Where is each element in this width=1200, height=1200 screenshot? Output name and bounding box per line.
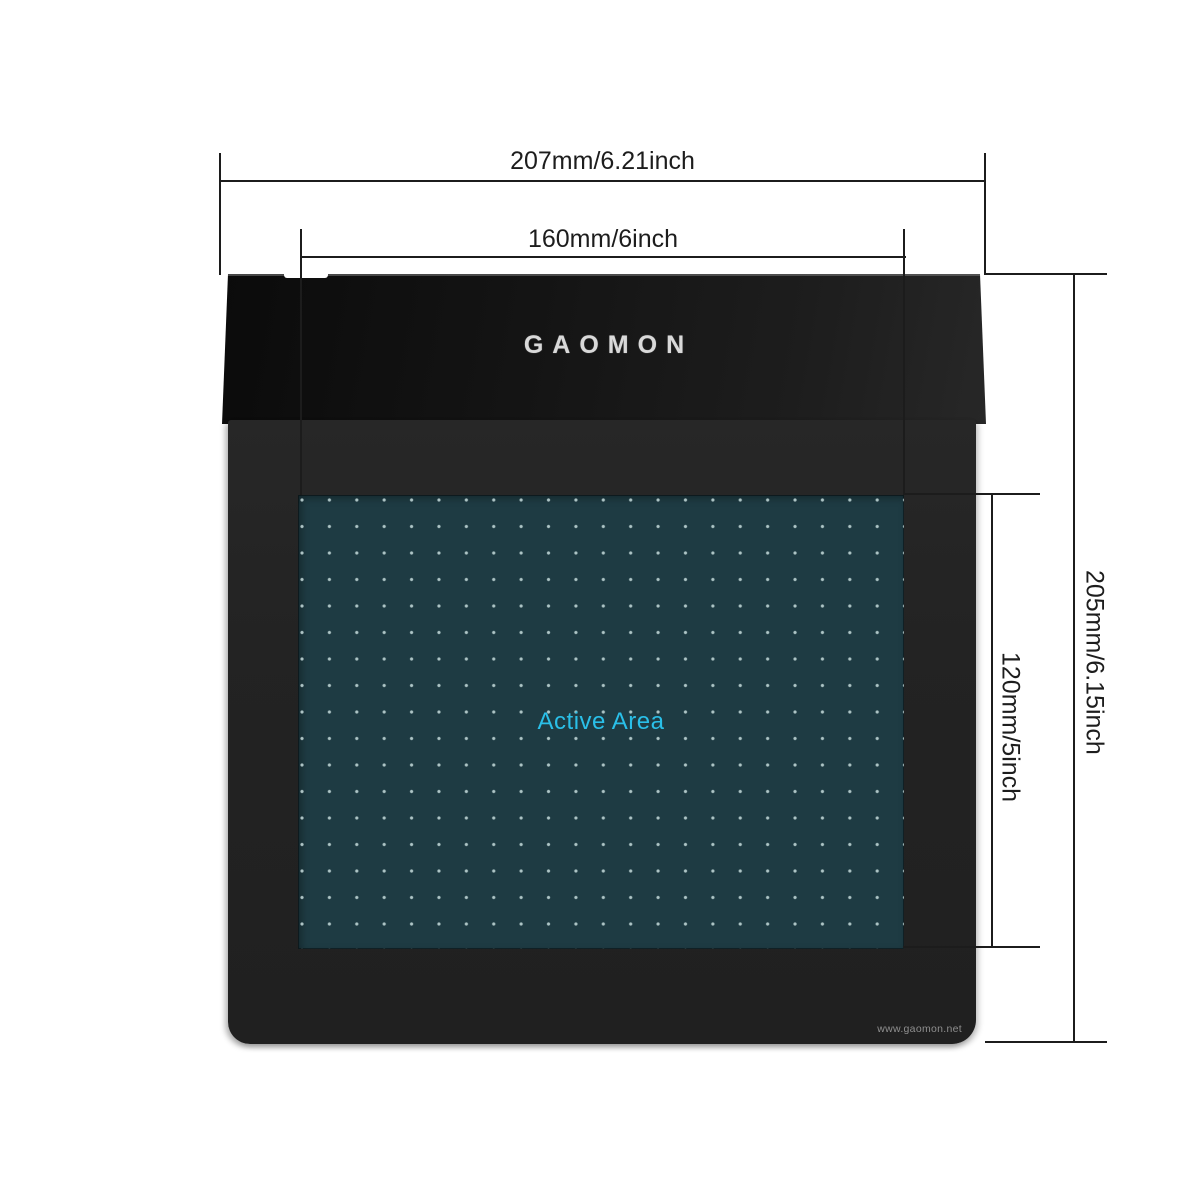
outer-height-tick-top [985,273,1107,275]
active-height-label: 120mm/5inch [996,627,1024,827]
active-width-line [300,256,906,258]
product-dimension-diagram: 207mm/6.21inch 160mm/6inch GAOMON www.ga… [0,0,1200,1200]
top-edge-highlight [226,274,982,276]
active-area-label: Active Area [538,708,665,736]
outer-height-tick-bottom [985,1041,1107,1043]
outer-height-line [1073,274,1075,1043]
active-height-tick-bottom [903,946,1040,948]
active-height-line [991,494,993,948]
outer-width-label: 207mm/6.21inch [220,148,985,176]
active-width-label: 160mm/6inch [300,226,906,254]
active-area: Active Area [298,495,904,949]
website-text: www.gaomon.net [877,1023,962,1035]
active-width-tick-left [300,229,302,495]
active-height-tick-top [903,493,1040,495]
top-edge-notch [284,273,328,278]
brand-logo: GAOMON [222,331,986,360]
outer-width-line [220,180,985,182]
active-width-tick-right [903,229,905,495]
tablet-top-cover: GAOMON [222,274,986,424]
outer-height-label: 205mm/6.15inch [1080,562,1108,762]
